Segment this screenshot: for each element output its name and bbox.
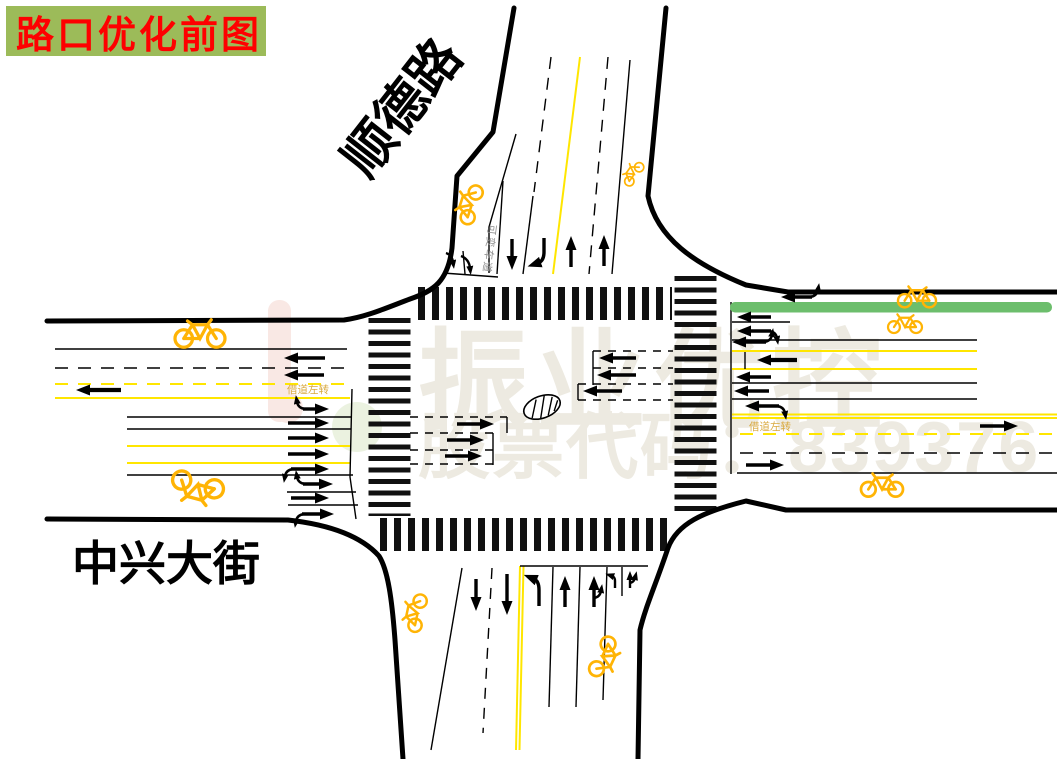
bicycle-icon xyxy=(175,320,225,348)
intersection-diagram-page: 振业优控 股票代码：839376 xyxy=(0,0,1057,759)
bus-lane-marking xyxy=(730,302,1052,313)
bicycle-icon xyxy=(619,158,646,188)
borrow-left-turn-label-east: 借道左转 xyxy=(749,420,791,433)
lane-line xyxy=(523,196,533,274)
bicycle-icon xyxy=(888,314,922,333)
arrow-turn-small xyxy=(612,576,615,588)
lane-line xyxy=(549,567,553,707)
arrows-south-road xyxy=(476,574,635,607)
bicycle-icon xyxy=(400,592,428,634)
lane-line xyxy=(463,251,465,274)
page-title: 路口优化前图 xyxy=(16,4,262,59)
lane-line-dashed xyxy=(589,57,608,274)
variable-lane-label: 可变车道 xyxy=(480,224,499,275)
lane-line xyxy=(431,568,462,750)
watermark-stockcode-text: 股票代码：839376 xyxy=(418,408,1040,488)
lane-lines-north-road xyxy=(443,57,630,277)
intersection-diagram: 振业优控 股票代码：839376 xyxy=(0,0,1057,759)
center-line-yellow xyxy=(553,57,580,274)
lane-line-dashed xyxy=(534,57,551,192)
edge-north-east xyxy=(648,8,1057,292)
arrow-turn-small xyxy=(461,256,470,268)
bicycle-icon xyxy=(587,634,626,682)
title-badge: 路口优化前图 xyxy=(6,6,266,56)
lane-line xyxy=(612,60,630,274)
edge-south-east xyxy=(638,501,1057,759)
lane-line xyxy=(603,567,607,700)
arrow-hook xyxy=(297,477,305,484)
lane-line xyxy=(576,567,580,707)
arrow-left-turn xyxy=(538,238,544,263)
road-label-west: 中兴大街 xyxy=(72,537,260,590)
road-label-north: 顺德路 xyxy=(332,28,474,187)
borrow-left-turn-label-west: 借道左转 xyxy=(287,383,329,396)
arrow-left-turn xyxy=(534,579,539,606)
lane-line-dashed xyxy=(483,568,492,733)
